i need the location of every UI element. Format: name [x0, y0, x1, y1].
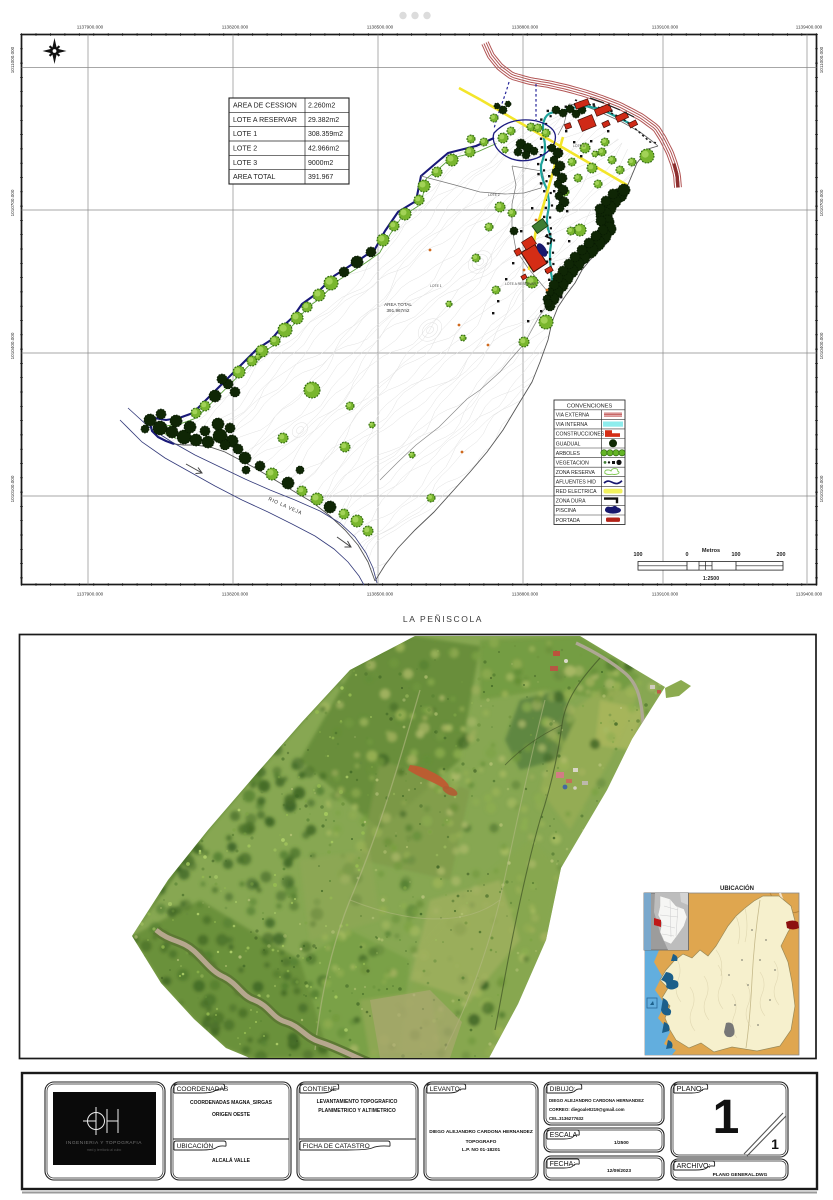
svg-text:29.382m2: 29.382m2: [308, 117, 339, 124]
svg-text:CONSTRUCCIONES: CONSTRUCCIONES: [556, 432, 605, 438]
svg-text:VIA EXTERNA: VIA EXTERNA: [556, 413, 590, 419]
svg-text:1/2500: 1/2500: [614, 1140, 629, 1146]
svg-text:1139100.000: 1139100.000: [652, 592, 679, 597]
svg-text:LEVANTO:: LEVANTO:: [430, 1086, 462, 1093]
svg-text:1010700.000: 1010700.000: [819, 189, 824, 216]
svg-text:COORDENADAS: COORDENADAS: [177, 1086, 229, 1093]
svg-text:CORREO: diegoale0219@gmail.com: CORREO: diegoale0219@gmail.com: [549, 1107, 625, 1112]
svg-text:LOTE 2: LOTE 2: [233, 146, 257, 153]
svg-text:FICHA DE CATASTRO: FICHA DE CATASTRO: [303, 1143, 370, 1150]
svg-text:12/09/2023: 12/09/2023: [607, 1168, 631, 1174]
svg-text:1138200.000: 1138200.000: [222, 25, 249, 30]
svg-text:FECHA:: FECHA:: [550, 1161, 576, 1168]
svg-text:GUADUAL: GUADUAL: [556, 441, 581, 447]
svg-text:2.260m2: 2.260m2: [308, 103, 335, 110]
svg-text:VIA INTERNA: VIA INTERNA: [556, 422, 588, 428]
svg-text:AREA DE CESSION: AREA DE CESSION: [233, 103, 297, 110]
svg-text:200: 200: [777, 552, 786, 558]
svg-text:PISCINA: PISCINA: [556, 508, 577, 514]
svg-text:1137900.000: 1137900.000: [77, 592, 104, 597]
svg-text:1: 1: [713, 1091, 740, 1144]
svg-text:ORIGEN OESTE: ORIGEN OESTE: [212, 1112, 251, 1118]
svg-text:0: 0: [686, 552, 689, 558]
svg-text:AREA TOTAL: AREA TOTAL: [384, 302, 412, 307]
svg-text:1139400.000: 1139400.000: [796, 592, 823, 597]
svg-text:1138500.000: 1138500.000: [367, 592, 394, 597]
svg-text:UBICACIÓN: UBICACIÓN: [720, 884, 754, 892]
svg-text:391.967: 391.967: [308, 174, 333, 181]
svg-text:COORDENADAS MAGNA_SIRGAS: COORDENADAS MAGNA_SIRGAS: [190, 1100, 273, 1106]
svg-text:LOTE 1: LOTE 1: [430, 284, 442, 288]
svg-text:TOPOGRAFO: TOPOGRAFO: [466, 1139, 497, 1145]
svg-text:LOTE A RESERVAR: LOTE A RESERVAR: [233, 117, 297, 124]
svg-text:RIO LA VEJA: RIO LA VEJA: [267, 496, 303, 516]
svg-text:DIEGO ALEJANDRO CARDONA HERNAN: DIEGO ALEJANDRO CARDONA HERNANDEZ: [429, 1129, 533, 1135]
svg-text:1010700.000: 1010700.000: [10, 189, 15, 216]
svg-text:ARBOLES: ARBOLES: [556, 451, 581, 457]
svg-text:ALCALÁ VALLE: ALCALÁ VALLE: [212, 1157, 251, 1164]
svg-text:CONTIENE: CONTIENE: [303, 1086, 338, 1093]
svg-text:LOTE A RESERVAR: LOTE A RESERVAR: [505, 282, 537, 286]
svg-text:DIBUJO:: DIBUJO:: [550, 1086, 576, 1093]
svg-text:PORTADA: PORTADA: [556, 518, 581, 524]
svg-text:ESCALA: ESCALA: [550, 1132, 578, 1139]
svg-text:med y territorio al cubo: med y territorio al cubo: [87, 1148, 122, 1152]
svg-text:UBICACIÓN: UBICACIÓN: [177, 1141, 214, 1150]
svg-text:ZONA DURA: ZONA DURA: [556, 499, 586, 505]
svg-text:RED ELECTRICA: RED ELECTRICA: [556, 489, 597, 495]
svg-text:9000m2: 9000m2: [308, 160, 333, 167]
svg-text:1138800.000: 1138800.000: [512, 25, 539, 30]
svg-text:ARCHIVO:: ARCHIVO:: [677, 1163, 711, 1170]
svg-text:1010100.000: 1010100.000: [10, 475, 15, 502]
svg-text:VEGETACION: VEGETACION: [556, 460, 589, 466]
svg-text:1137900.000: 1137900.000: [77, 25, 104, 30]
svg-text:Metros: Metros: [702, 548, 720, 554]
svg-text:100: 100: [634, 552, 643, 558]
svg-text:LA PEÑISCOLA: LA PEÑISCOLA: [403, 614, 483, 624]
svg-text:LOTE 3: LOTE 3: [233, 160, 257, 167]
svg-text:PLANIMETRICO Y ALTIMETRICO: PLANIMETRICO Y ALTIMETRICO: [318, 1108, 396, 1114]
svg-text:1138200.000: 1138200.000: [222, 592, 249, 597]
svg-text:INGENIERIA Y TOPOGRAFIA: INGENIERIA Y TOPOGRAFIA: [66, 1140, 142, 1146]
svg-text:1011000.000: 1011000.000: [10, 46, 15, 73]
svg-text:1: 1: [771, 1136, 779, 1152]
svg-text:42.966m2: 42.966m2: [308, 146, 339, 153]
svg-text:1139400.000: 1139400.000: [796, 25, 823, 30]
svg-text:LEVANTAMIENTO TOPOGRAFICO: LEVANTAMIENTO TOPOGRAFICO: [317, 1099, 398, 1105]
svg-text:LOTE 3: LOTE 3: [573, 144, 585, 148]
svg-text:LOTE 2: LOTE 2: [488, 193, 500, 197]
svg-text:100: 100: [732, 552, 741, 558]
svg-text:AFLUENTES HID: AFLUENTES HID: [556, 480, 597, 486]
svg-text:1011000.000: 1011000.000: [819, 46, 824, 73]
svg-text:CONVENCIONES: CONVENCIONES: [567, 403, 613, 409]
svg-text:LOTE 1: LOTE 1: [233, 131, 257, 138]
svg-text:1010100.000: 1010100.000: [819, 475, 824, 502]
svg-text:1010400.000: 1010400.000: [819, 332, 824, 359]
svg-text:DIEGO ALEJANDRO CARDONA HERNAN: DIEGO ALEJANDRO CARDONA HERNANDEZ: [549, 1098, 644, 1103]
svg-text:1010400.000: 1010400.000: [10, 332, 15, 359]
svg-text:L.P. NO 01-18201: L.P. NO 01-18201: [462, 1147, 501, 1153]
svg-text:CEL.3136277632: CEL.3136277632: [549, 1116, 584, 1121]
svg-text:PLANO GENERAL.DWG: PLANO GENERAL.DWG: [713, 1172, 768, 1178]
svg-text:1138500.000: 1138500.000: [367, 25, 394, 30]
svg-text:ZONA RESERVA: ZONA RESERVA: [556, 470, 596, 476]
svg-text:PLANO:: PLANO:: [677, 1084, 704, 1093]
svg-text:1:2500: 1:2500: [703, 576, 719, 582]
svg-text:1139100.000: 1139100.000: [652, 25, 679, 30]
svg-text:1138800.000: 1138800.000: [512, 592, 539, 597]
svg-text:308.359m2: 308.359m2: [308, 131, 343, 138]
svg-text:391.967m2: 391.967m2: [387, 308, 410, 313]
svg-text:AREA TOTAL: AREA TOTAL: [233, 174, 276, 181]
